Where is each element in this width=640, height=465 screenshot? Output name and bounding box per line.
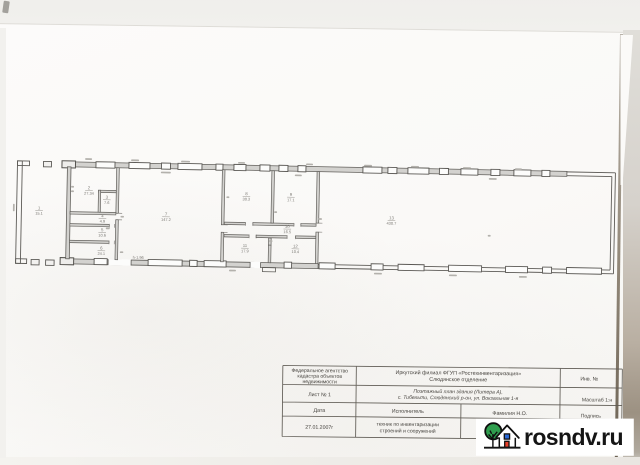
svg-text:rosndv.ru: rosndv.ru (524, 424, 623, 450)
